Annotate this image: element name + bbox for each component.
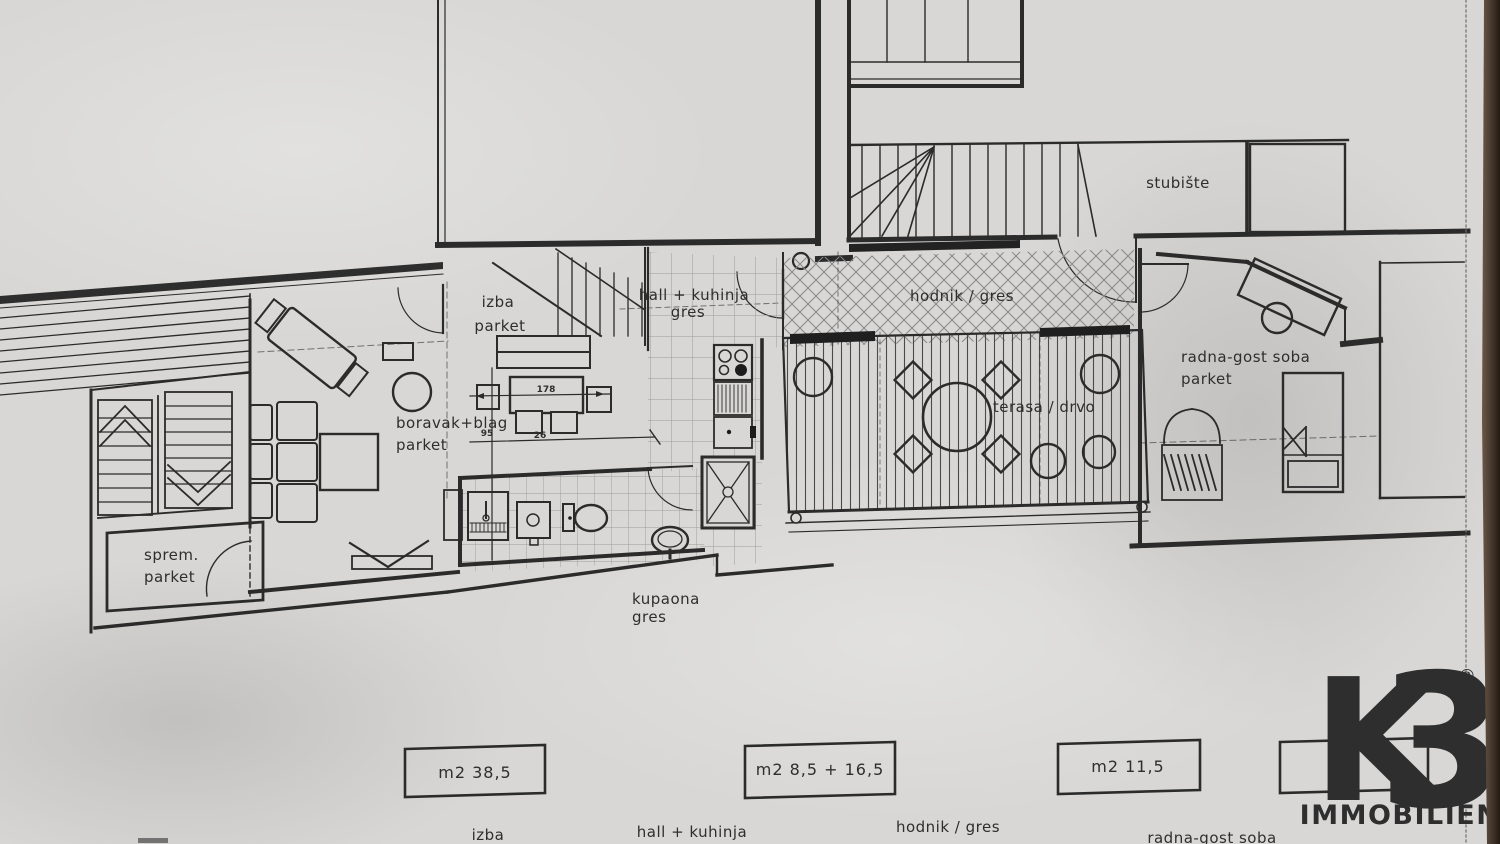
label-izba: izba	[482, 293, 515, 311]
label-stubiste: stubište	[1146, 174, 1210, 192]
logo-subtitle: IMMOBILIEN	[1300, 800, 1500, 831]
label-sprem-floor: parket	[144, 568, 195, 586]
label-hodnik: hodnik / gres	[910, 287, 1014, 305]
legend-room-hall: hall + kuhinja	[637, 823, 747, 841]
kitchen-counter	[714, 382, 752, 415]
vanity	[468, 492, 508, 540]
dim-dining-width: 178	[537, 385, 556, 395]
floorplan-drawing: izba parket hall + kuhinja gres hodnik /…	[0, 0, 1500, 844]
label-boravak-floor: parket	[396, 436, 447, 454]
floorplan-photo: izba parket hall + kuhinja gres hodnik /…	[0, 0, 1500, 844]
kitchen-sink-cabinet	[714, 417, 756, 448]
legend-area-izba: m2 38,5	[438, 763, 511, 782]
cropped-text-fragment	[138, 838, 168, 843]
label-radna-floor: parket	[1181, 370, 1232, 388]
label-kupaona-floor: gres	[632, 608, 666, 626]
legend-area-hodnik: m2 11,5	[1091, 757, 1164, 776]
legend-room-radna: radna-gost soba	[1147, 829, 1276, 844]
terrace	[783, 325, 1150, 532]
toilet	[563, 504, 607, 531]
dim-dining-depth: 95	[481, 429, 494, 439]
legend-room-hodnik: hodnik / gres	[896, 818, 1000, 836]
label-hall-floor: gres	[671, 303, 705, 321]
legend-area-hall: m2 8,5 + 16,5	[756, 760, 885, 779]
label-terasa: terasa / drvo	[993, 398, 1095, 416]
washing-machine	[517, 502, 550, 545]
label-izba-floor: parket	[474, 317, 525, 335]
dim-dining-offset: 26	[534, 431, 547, 441]
label-kupaona: kupaona	[632, 590, 700, 608]
label-sprem: sprem.	[144, 546, 199, 564]
shower	[702, 457, 754, 528]
legend-room-izba: izba	[472, 826, 505, 844]
label-radna: radna-gost soba	[1181, 348, 1310, 366]
k3-logo: K 3 ® IMMOBILIEN	[1300, 634, 1500, 844]
stove	[714, 345, 752, 380]
label-hall: hall + kuhinja	[639, 286, 749, 304]
registered-icon: ®	[1458, 666, 1476, 687]
